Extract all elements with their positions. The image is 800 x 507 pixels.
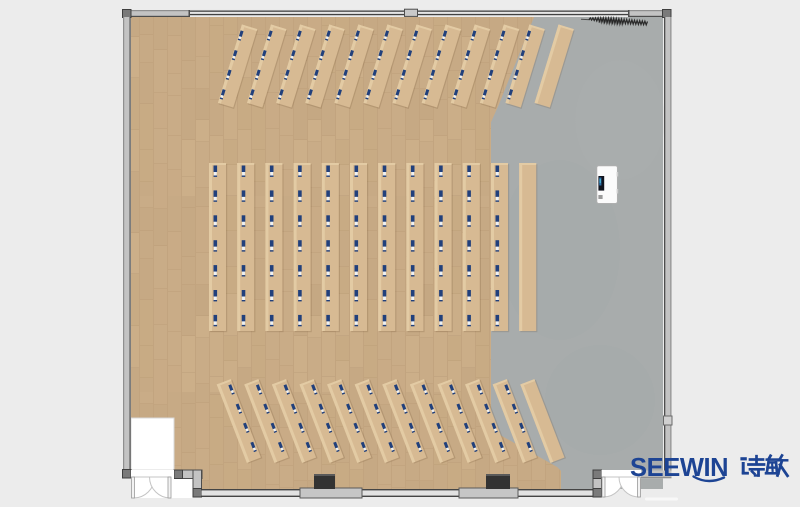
svg-text:SEEWIN: SEEWIN xyxy=(630,454,728,482)
